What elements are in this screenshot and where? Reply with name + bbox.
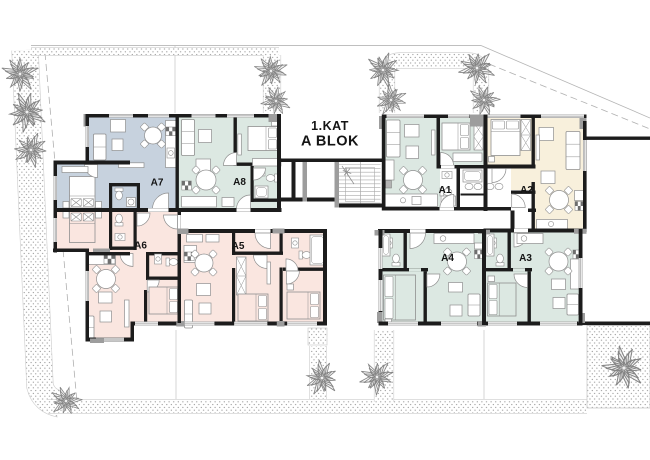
svg-text:1.KAT: 1.KAT: [311, 119, 349, 133]
svg-text:A3: A3: [519, 253, 532, 264]
svg-text:A2: A2: [520, 185, 533, 196]
svg-text:A BLOK: A BLOK: [301, 134, 359, 150]
svg-text:A5: A5: [232, 241, 245, 252]
svg-text:A8: A8: [233, 177, 246, 188]
svg-text:A1: A1: [439, 185, 452, 196]
svg-text:A7: A7: [151, 178, 164, 189]
svg-text:A6: A6: [134, 241, 147, 252]
svg-text:A4: A4: [441, 253, 454, 264]
